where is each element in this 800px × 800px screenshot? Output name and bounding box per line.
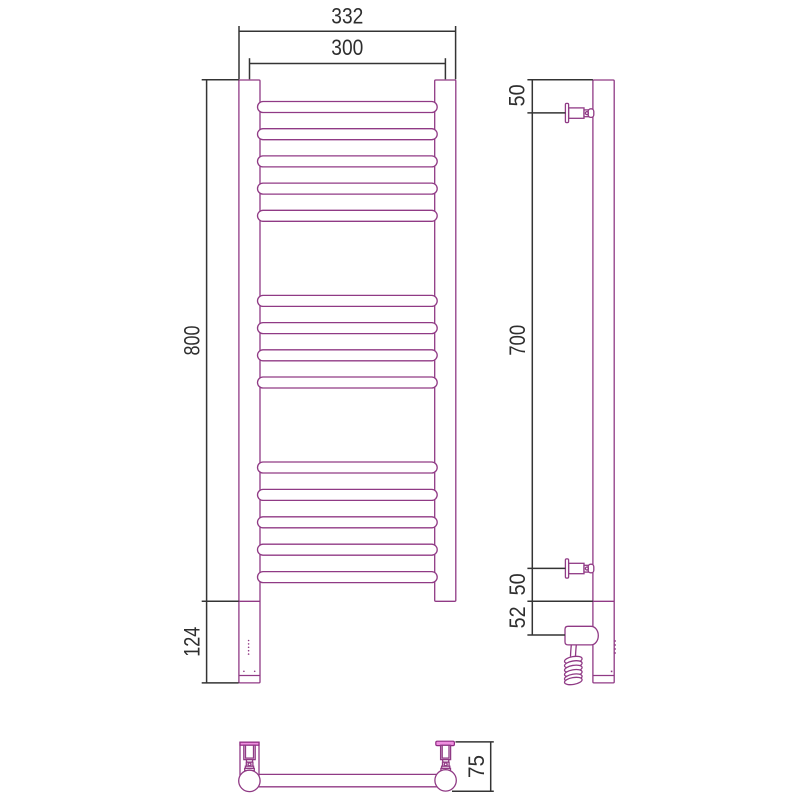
svg-text:700: 700 [505,325,530,356]
svg-text:50: 50 [505,84,530,106]
svg-text:52: 52 [505,606,530,628]
svg-text:75: 75 [464,755,489,778]
svg-text:332: 332 [331,4,363,29]
svg-text:800: 800 [179,326,204,356]
svg-text:124: 124 [179,627,204,657]
svg-text:300: 300 [331,35,363,60]
svg-text:50: 50 [505,573,530,595]
